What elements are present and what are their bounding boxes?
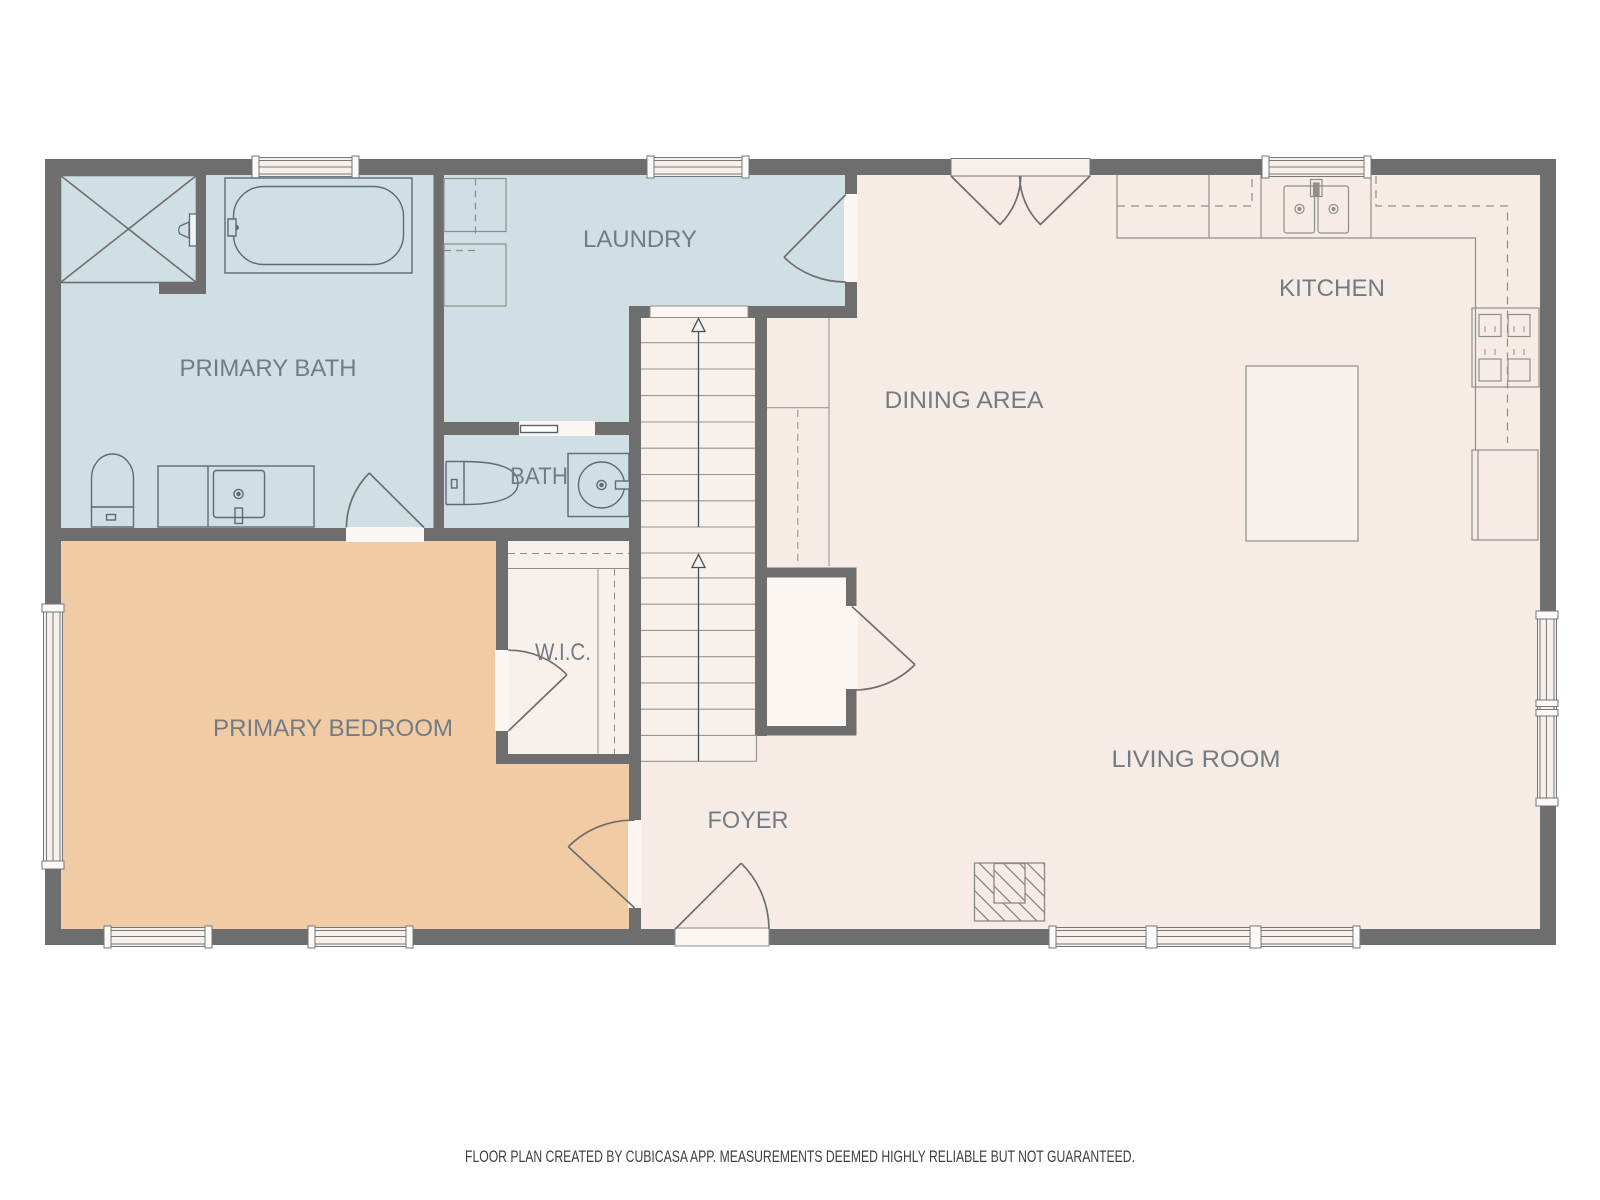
svg-text:FOYER: FOYER xyxy=(708,807,789,834)
svg-text:DINING AREA: DINING AREA xyxy=(885,387,1044,414)
svg-text:KITCHEN: KITCHEN xyxy=(1279,275,1385,302)
svg-text:FLOOR PLAN CREATED BY CUBICASA: FLOOR PLAN CREATED BY CUBICASA APP. MEAS… xyxy=(465,1147,1135,1166)
svg-text:LAUNDRY: LAUNDRY xyxy=(583,226,697,253)
svg-text:BATH: BATH xyxy=(510,463,568,490)
svg-text:PRIMARY BEDROOM: PRIMARY BEDROOM xyxy=(213,715,453,742)
svg-text:W.I.C.: W.I.C. xyxy=(535,639,591,666)
svg-text:LIVING ROOM: LIVING ROOM xyxy=(1112,746,1281,773)
svg-text:PRIMARY BATH: PRIMARY BATH xyxy=(180,355,357,382)
